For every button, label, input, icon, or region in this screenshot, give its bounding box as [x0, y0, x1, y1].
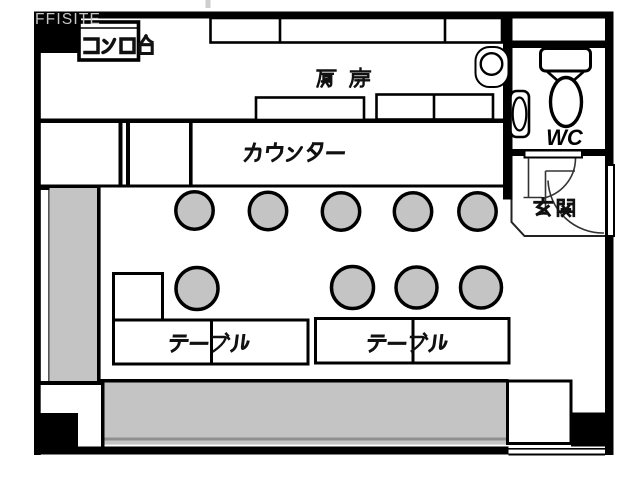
- svg-text:FFISITE: FFISITE: [35, 11, 101, 28]
- svg-text:WC: WC: [546, 125, 584, 150]
